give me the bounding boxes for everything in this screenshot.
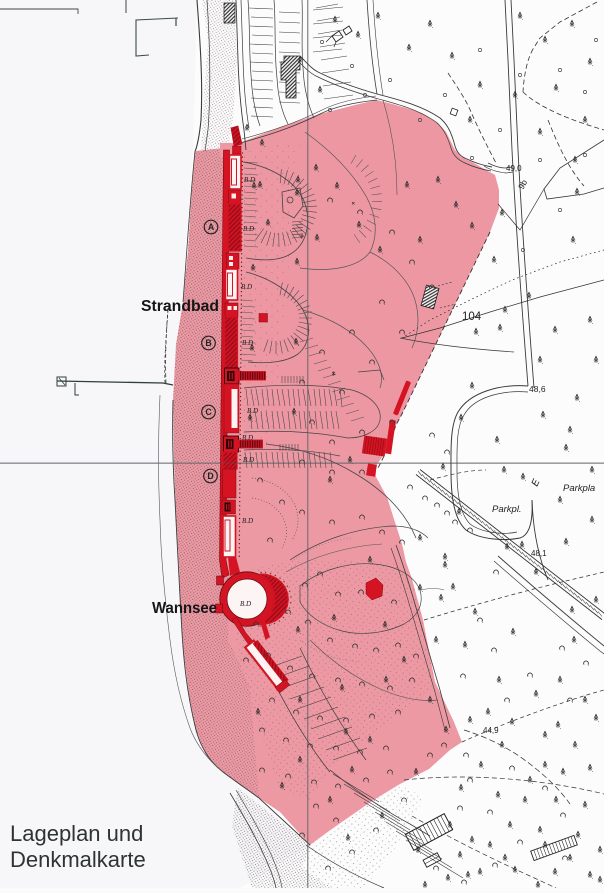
svg-text:Lageplan und: Lageplan und — [10, 821, 143, 846]
svg-text:D: D — [207, 471, 213, 481]
svg-text:B.D: B.D — [243, 225, 254, 233]
svg-text:B.D: B.D — [241, 283, 252, 291]
svg-text:104: 104 — [462, 311, 482, 323]
svg-text:B.D: B.D — [242, 339, 253, 347]
svg-text:48,6: 48,6 — [529, 384, 546, 394]
svg-text:48,1: 48,1 — [531, 549, 547, 558]
svg-text:44,9: 44,9 — [483, 726, 499, 735]
svg-text:Strandbad: Strandbad — [141, 298, 219, 315]
svg-text:Parkpla: Parkpla — [563, 483, 595, 494]
svg-text:B.D: B.D — [244, 176, 255, 184]
svg-text:B.D: B.D — [240, 600, 251, 608]
svg-text:49,0: 49,0 — [506, 164, 522, 173]
svg-text:A: A — [208, 222, 215, 232]
svg-text:B: B — [205, 338, 211, 348]
svg-text:C: C — [205, 407, 212, 417]
svg-text:Wannsee: Wannsee — [152, 600, 217, 617]
svg-text:Denkmalkarte: Denkmalkarte — [10, 847, 146, 872]
svg-text:Parkpl.: Parkpl. — [492, 504, 522, 515]
svg-text:B.D: B.D — [247, 407, 258, 415]
svg-text:B.D: B.D — [242, 517, 253, 525]
svg-text:B.D: B.D — [242, 434, 253, 442]
